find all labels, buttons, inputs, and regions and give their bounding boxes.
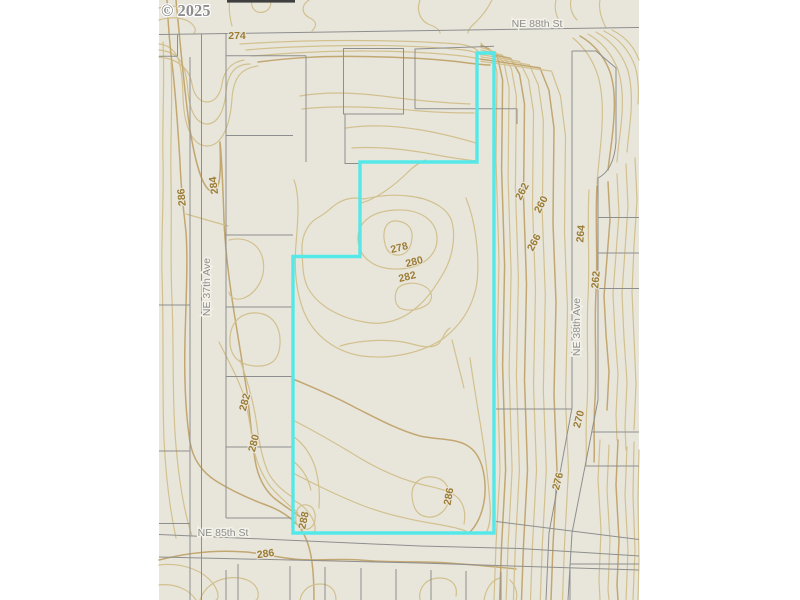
svg-text:NE 38th Ave: NE 38th Ave	[571, 298, 583, 356]
svg-text:262: 262	[589, 270, 602, 289]
svg-text:264: 264	[574, 224, 587, 243]
svg-text:NE 88th St: NE 88th St	[512, 18, 563, 30]
svg-text:286: 286	[175, 188, 188, 207]
svg-text:286: 286	[256, 547, 275, 561]
svg-text:NE 37th Ave: NE 37th Ave	[201, 258, 213, 316]
svg-text:274: 274	[228, 30, 246, 42]
svg-text:284: 284	[207, 176, 221, 195]
svg-text:© 2025: © 2025	[161, 1, 210, 20]
svg-text:NE 85th St: NE 85th St	[198, 527, 249, 539]
